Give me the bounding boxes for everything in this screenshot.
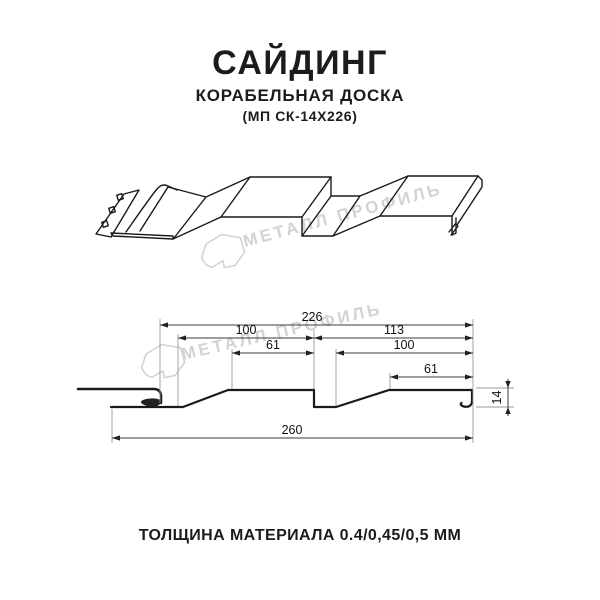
dimension-overall-226: 226 [160,310,473,328]
watermark-lower: МЕТАЛЛ ПРОФИЛЬ [138,299,384,382]
profile-lock-hook [141,398,161,406]
watermark-upper: МЕТАЛЛ ПРОФИЛЬ [198,179,444,271]
panel-hem-edge [111,233,173,239]
profile-outline [111,390,472,407]
product-drawing-page: САЙДИНГ КОРАБЕЛЬНАЯ ДОСКА (МП СК-14Х226)… [0,0,600,600]
metal-profile-logo-icon [198,231,247,272]
dim-label: 260 [282,423,303,437]
thickness-note: ТОЛЩИНА МАТЕРИАЛА 0.4/0,45/0,5 ММ [0,527,600,545]
dim-label: 113 [384,323,404,337]
watermark-text-upper: МЕТАЛЛ ПРОФИЛЬ [241,179,444,250]
dim-label: 14 [490,391,504,405]
dim-label: 100 [236,323,257,337]
dimension-right-flat-61: 61 [390,362,473,380]
watermark-text-lower: МЕТАЛЛ ПРОФИЛЬ [180,299,384,364]
dimension-total-260: 260 [112,423,473,441]
dim-label: 61 [424,362,438,376]
dim-label: 61 [266,338,280,352]
panel-end-fold [449,176,482,235]
technical-drawing-canvas: МЕТАЛЛ ПРОФИЛЬ МЕТАЛЛ ПРОФИЛЬ [0,0,600,600]
dim-label: 100 [394,338,415,352]
dimension-right-inner-100: 100 [336,338,473,356]
dim-label: 226 [302,310,323,324]
dimension-height-14: 14 [490,379,511,416]
